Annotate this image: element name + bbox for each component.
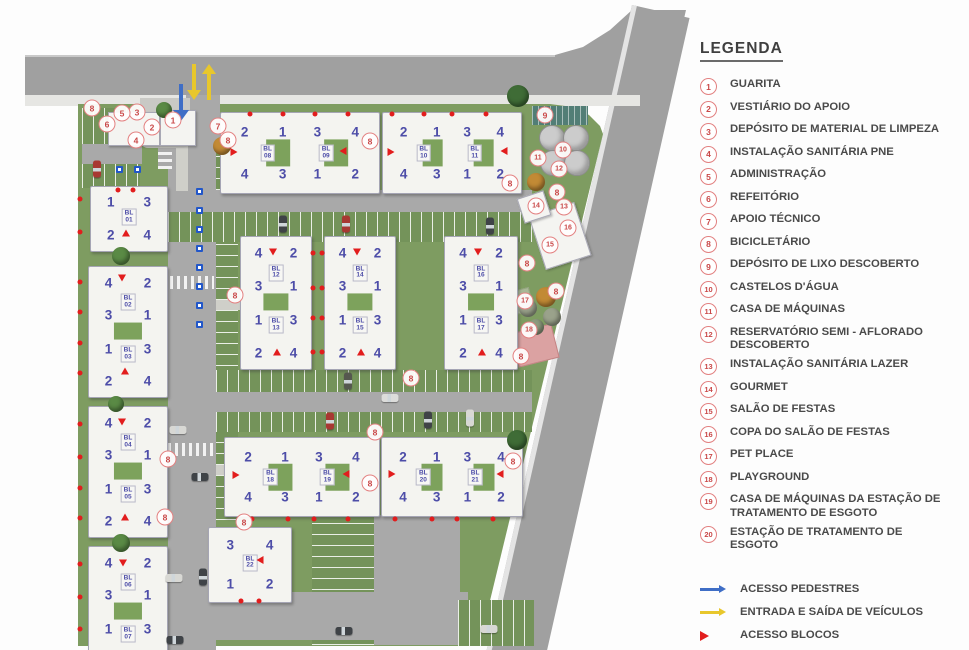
block-access-triangle-icon: [233, 471, 240, 479]
building-cluster-06-07: 42311324BL06BL07: [88, 546, 168, 650]
courtyard: [114, 322, 142, 339]
legend-ref-marker-8: 8: [519, 255, 536, 272]
building-unit-number: 1: [281, 449, 289, 464]
building-unit-number: 1: [105, 481, 113, 496]
bl-label-line: 03: [124, 354, 133, 361]
accessible-parking-icon: [196, 245, 203, 252]
private-area-dot-icon: [131, 188, 136, 193]
legend-item: 19CASA DE MÁQUINAS DA ESTAÇÃO DE TRATAME…: [700, 493, 962, 520]
crosswalk-mid: [170, 276, 214, 289]
legend-item-number: 3: [700, 123, 717, 140]
block-access-triangle-icon: [343, 470, 350, 478]
building-unit-number: 4: [144, 374, 152, 389]
bl-label-line: 07: [124, 634, 133, 641]
legend-ref-marker-3: 3: [129, 104, 146, 121]
legend-item-label: GUARITA: [730, 78, 781, 92]
building-unit-number: 1: [144, 448, 152, 463]
building-unit-number: 3: [459, 278, 467, 293]
building-unit-number: 4: [105, 415, 113, 430]
building-cluster-08-09: 21344312BL08BL09: [220, 112, 380, 194]
building-unit-number: 1: [464, 490, 472, 505]
parked-car: [336, 627, 353, 635]
site-plan-page: 21344312BL08BL0921344312BL10BL1121344312…: [0, 0, 969, 650]
building-unit-number: 1: [227, 576, 235, 591]
legend-ref-marker-2: 2: [144, 119, 161, 136]
legend-item-label: PLAYGROUND: [730, 471, 809, 485]
building-unit-number: 4: [105, 275, 113, 290]
building-unit-number: 4: [105, 555, 113, 570]
legend-ref-marker-6: 6: [99, 116, 116, 133]
legend-item-label: PET PLACE: [730, 448, 793, 462]
legend-item-label: ADMINISTRAÇÃO: [730, 168, 826, 182]
building-unit-number: 1: [459, 313, 467, 328]
legend-ref-marker-15: 15: [542, 237, 559, 254]
bl-label-line: 13: [272, 325, 281, 332]
legend-item-number: 19: [700, 493, 717, 510]
legend-item-number: 7: [700, 213, 717, 230]
accessible-parking-icon: [196, 207, 203, 214]
block-access-triangle-icon: [121, 368, 129, 375]
building-unit-number: 2: [241, 125, 249, 140]
legend-ref-marker-8: 8: [362, 475, 379, 492]
building-unit-number: 2: [255, 346, 263, 361]
bl-label: BL19: [320, 469, 335, 486]
legend-item-number: 14: [700, 381, 717, 398]
bl-label-line: 02: [124, 302, 133, 309]
building-unit-number: 2: [497, 490, 505, 505]
bl-label-line: 14: [356, 273, 365, 280]
building-unit-number: 2: [144, 415, 152, 430]
bl-label-line: 04: [124, 442, 133, 449]
legend-ref-marker-17: 17: [517, 293, 534, 310]
vehicle-access-arrow-icon: [700, 611, 728, 614]
private-area-dot-icon: [311, 350, 316, 355]
legend-ref-marker-8: 8: [367, 424, 384, 441]
building-unit-number: 3: [374, 313, 382, 328]
legend-item-label: DEPÓSITO DE LIXO DESCOBERTO: [730, 258, 919, 272]
private-area-dot-icon: [346, 517, 351, 522]
private-area-dot-icon: [390, 112, 395, 117]
building-unit-number: 1: [433, 125, 441, 140]
private-area-dot-icon: [393, 517, 398, 522]
building-unit-number: 1: [463, 166, 471, 181]
bl-label-line: 22: [246, 563, 255, 570]
legend-item: 11CASA DE MÁQUINAS: [700, 303, 962, 320]
block-access-triangle-icon: [700, 631, 728, 641]
courtyard: [114, 462, 142, 479]
legend-symbol-label: ENTRADA E SAÍDA DE VEÍCULOS: [740, 606, 923, 620]
bl-label-line: 11: [470, 153, 479, 160]
legend-ref-marker-11: 11: [530, 150, 547, 167]
legend-ref-marker-8: 8: [362, 133, 379, 150]
private-area-dot-icon: [455, 517, 460, 522]
legend-item-label: CASA DE MÁQUINAS DA ESTAÇÃO DE TRATAMENT…: [730, 493, 942, 520]
building-unit-number: 2: [105, 514, 113, 529]
block-access-triangle-icon: [257, 556, 264, 564]
arrowhead: [719, 608, 726, 616]
building-unit-number: 3: [463, 125, 471, 140]
tree-icon: [507, 85, 529, 107]
legend-ref-marker-5: 5: [114, 105, 131, 122]
private-area-dot-icon: [78, 562, 83, 567]
parked-car: [166, 574, 183, 582]
private-area-dot-icon: [311, 316, 316, 321]
legend-item-number: 2: [700, 101, 717, 118]
block-access-triangle-icon: [353, 249, 361, 256]
building-unit-number: 2: [144, 275, 152, 290]
private-area-dot-icon: [78, 627, 83, 632]
building-unit-number: 3: [314, 125, 322, 140]
private-area-dot-icon: [312, 517, 317, 522]
building-unit-number: 1: [105, 341, 113, 356]
legend-item: 3DEPÓSITO DE MATERIAL DE LIMPEZA: [700, 123, 962, 140]
building-cluster-01: 1324BL01: [90, 186, 168, 252]
parked-car: [424, 412, 432, 429]
building-unit-number: 2: [144, 555, 152, 570]
tree-icon: [112, 247, 130, 265]
private-area-dot-icon: [78, 455, 83, 460]
legend-item: 8BICICLETÁRIO: [700, 236, 962, 253]
legend-item-label: GOURMET: [730, 381, 788, 395]
building-unit-number: 3: [144, 341, 152, 356]
building-unit-number: 4: [339, 245, 347, 260]
legend-item-label: DEPÓSITO DE MATERIAL DE LIMPEZA: [730, 123, 939, 137]
legend-ref-marker-8: 8: [548, 283, 565, 300]
building-unit-number: 1: [495, 278, 503, 293]
legend-title: LEGENDA: [700, 40, 783, 62]
vehicle-exit-arrow-icon: [207, 74, 211, 100]
legend-ref-marker-8: 8: [403, 370, 420, 387]
building-unit-number: 1: [255, 313, 263, 328]
courtyard: [263, 293, 288, 310]
private-area-dot-icon: [78, 230, 83, 235]
building-unit-number: 3: [144, 481, 152, 496]
private-area-dot-icon: [320, 316, 325, 321]
legend-item-number: 12: [700, 326, 717, 343]
parked-car: [279, 216, 287, 233]
legend-item-number: 6: [700, 191, 717, 208]
parking-row-northwest-lower: [82, 164, 140, 188]
parked-car: [486, 218, 494, 235]
building-unit-number: 3: [315, 449, 323, 464]
legend-item-number: 17: [700, 448, 717, 465]
parked-car: [93, 161, 101, 178]
legend-item: 16COPA DO SALÃO DE FESTAS: [700, 426, 962, 443]
legend-symbol-label: ACESSO PEDESTRES: [740, 583, 859, 597]
building-unit-number: 1: [144, 588, 152, 603]
building-unit-number: 4: [399, 490, 407, 505]
accessible-parking-icon: [196, 188, 203, 195]
bl-label-line: 01: [125, 217, 134, 224]
arrowhead: [719, 585, 726, 593]
legend-item-number: 9: [700, 258, 717, 275]
legend-item-label: BICICLETÁRIO: [730, 236, 810, 250]
parked-car: [199, 569, 207, 586]
legend-item-label: INSTALAÇÃO SANITÁRIA LAZER: [730, 358, 908, 372]
block-access-triangle-icon: [119, 560, 127, 567]
building-unit-number: 1: [314, 166, 322, 181]
private-area-dot-icon: [78, 197, 83, 202]
legend-item-label: INSTALAÇÃO SANITÁRIA PNE: [730, 146, 894, 160]
legend-item-number: 4: [700, 146, 717, 163]
private-area-dot-icon: [78, 516, 83, 521]
bl-label-line: 08: [263, 153, 272, 160]
bl-label: BL21: [468, 469, 483, 486]
private-area-dot-icon: [422, 112, 427, 117]
building-unit-number: 1: [105, 621, 113, 636]
vehicle-entry-arrow-icon: [192, 64, 196, 90]
legend-item: 14GOURMET: [700, 381, 962, 398]
private-area-dot-icon: [346, 112, 351, 117]
legend-symbols: ACESSO PEDESTRESENTRADA E SAÍDA DE VEÍCU…: [700, 583, 962, 650]
private-area-dot-icon: [320, 286, 325, 291]
pedestrian-access-arrow-icon: [700, 588, 720, 591]
legend-ref-marker-16: 16: [560, 220, 577, 237]
legend-item: 2VESTIÁRIO DO APOIO: [700, 101, 962, 118]
building-unit-number: 3: [433, 166, 441, 181]
legend-ref-marker-1: 1: [165, 112, 182, 129]
bl-label: BL22: [243, 554, 258, 571]
parked-car: [481, 625, 498, 633]
private-area-dot-icon: [116, 188, 121, 193]
private-area-dot-icon: [248, 112, 253, 117]
bl-label-line: 19: [323, 477, 332, 484]
legend-item-label: SALÃO DE FESTAS: [730, 403, 835, 417]
internal-lane-central: [168, 392, 532, 412]
building-cluster-22: 3412BL22: [208, 527, 292, 603]
building-unit-number: 3: [279, 166, 287, 181]
building-unit-number: 4: [143, 228, 151, 243]
building-cluster-02-03: 42311324BL02BL03: [88, 266, 168, 398]
private-area-dot-icon: [78, 280, 83, 285]
legend-item-label: APOIO TÉCNICO: [730, 213, 820, 227]
block-access-triangle-icon: [497, 470, 504, 478]
block-access-triangle-icon: [474, 249, 482, 256]
private-area-dot-icon: [430, 517, 435, 522]
vehicle-access-arrow-icon: [700, 611, 720, 614]
building-unit-number: 4: [290, 346, 298, 361]
bl-label: BL07: [121, 626, 136, 643]
legend-ref-marker-4: 4: [128, 132, 145, 149]
accessible-parking-icon: [196, 264, 203, 271]
legend-symbol-item: ENTRADA E SAÍDA DE VEÍCULOS: [700, 606, 962, 620]
parking-row-southeast: [458, 600, 534, 646]
building-unit-number: 2: [352, 166, 360, 181]
legend-ref-marker-8: 8: [84, 100, 101, 117]
building-unit-number: 2: [495, 245, 503, 260]
bl-label: BL06: [121, 574, 136, 591]
accessible-parking-icon: [196, 321, 203, 328]
private-area-dot-icon: [320, 350, 325, 355]
legend-ref-marker-9: 9: [537, 107, 554, 124]
tree-icon: [543, 308, 561, 326]
accessible-parking-icon: [196, 226, 203, 233]
private-area-dot-icon: [491, 517, 496, 522]
building-unit-number: 1: [107, 194, 115, 209]
block-access-triangle-icon: [389, 470, 396, 478]
tree-icon: [112, 534, 130, 552]
private-area-dot-icon: [78, 486, 83, 491]
legend-item-label: CASA DE MÁQUINAS: [730, 303, 845, 317]
bl-label: BL12: [269, 264, 284, 281]
legend-item: 17PET PLACE: [700, 448, 962, 465]
block-access-triangle-icon: [700, 631, 709, 641]
legend-item-number: 10: [700, 281, 717, 298]
building-unit-number: 4: [497, 125, 505, 140]
vehicle-exit-arrowhead-icon: [202, 64, 216, 74]
legend-item: 15SALÃO DE FESTAS: [700, 403, 962, 420]
legend-item: 4INSTALAÇÃO SANITÁRIA PNE: [700, 146, 962, 163]
private-area-dot-icon: [286, 517, 291, 522]
legend-item: 20ESTAÇÃO DE TRATAMENTO DE ESGOTO: [700, 526, 962, 553]
bl-label: BL04: [121, 434, 136, 451]
private-area-dot-icon: [78, 341, 83, 346]
accessible-parking-icon: [134, 166, 141, 173]
private-area-dot-icon: [239, 599, 244, 604]
building-unit-number: 3: [339, 278, 347, 293]
parked-car: [192, 473, 209, 481]
legend-ref-marker-8: 8: [157, 509, 174, 526]
legend-ref-marker-8: 8: [505, 453, 522, 470]
building-unit-number: 3: [144, 621, 152, 636]
block-access-triangle-icon: [118, 419, 126, 426]
legend-ref-marker-8: 8: [513, 348, 530, 365]
building-unit-number: 3: [290, 313, 298, 328]
legend-item-number: 15: [700, 403, 717, 420]
legend-item-label: COPA DO SALÃO DE FESTAS: [730, 426, 890, 440]
legend-ref-marker-14: 14: [528, 198, 545, 215]
legend-item-number: 16: [700, 426, 717, 443]
block-access-triangle-icon: [478, 349, 486, 356]
legend-ref-marker-10: 10: [555, 142, 572, 159]
parking-row-central-upper: [216, 370, 532, 392]
legend-ref-marker-13: 13: [556, 199, 573, 216]
site-plan-map: 21344312BL08BL0921344312BL10BL1121344312…: [0, 0, 700, 650]
legend-item: 1GUARITA: [700, 78, 962, 95]
accessible-parking-icon: [196, 283, 203, 290]
building-unit-number: 1: [339, 313, 347, 328]
parked-car: [342, 216, 350, 233]
bl-label: BL01: [122, 209, 137, 226]
legend-symbol-item: ACESSO PEDESTRES: [700, 583, 962, 597]
block-access-triangle-icon: [121, 514, 129, 521]
building-unit-number: 1: [433, 449, 441, 464]
legend-item-label: VESTIÁRIO DO APOIO: [730, 101, 850, 115]
bl-label-line: 05: [124, 494, 133, 501]
building-unit-number: 2: [290, 245, 298, 260]
building-unit-number: 4: [144, 514, 152, 529]
legend-item-number: 1: [700, 78, 717, 95]
block-access-triangle-icon: [118, 275, 126, 282]
bl-label-line: 16: [477, 273, 486, 280]
legend-item-number: 20: [700, 526, 717, 543]
main-road-top: [25, 55, 640, 99]
legend-item-label: RESERVATÓRIO SEMI - AFLORADO DESCOBERTO: [730, 326, 942, 353]
private-area-dot-icon: [78, 422, 83, 427]
building-unit-number: 1: [144, 308, 152, 323]
block-access-triangle-icon: [273, 349, 281, 356]
building-unit-number: 4: [244, 490, 252, 505]
legend-item: 5ADMINISTRAÇÃO: [700, 168, 962, 185]
building-unit-number: 2: [266, 576, 274, 591]
legend-item-number: 18: [700, 471, 717, 488]
bl-label-line: 21: [471, 477, 480, 484]
building-unit-number: 2: [107, 228, 115, 243]
private-area-dot-icon: [484, 112, 489, 117]
private-area-dot-icon: [450, 112, 455, 117]
vehicle-entry-arrowhead-icon: [187, 90, 201, 100]
building-unit-number: 4: [352, 125, 360, 140]
building-unit-number: 3: [105, 448, 113, 463]
bl-label: BL18: [263, 469, 278, 486]
block-access-triangle-icon: [501, 147, 508, 155]
building-unit-number: 4: [352, 449, 360, 464]
private-area-dot-icon: [78, 595, 83, 600]
accessible-parking-icon: [196, 302, 203, 309]
legend-ref-marker-18: 18: [521, 322, 538, 339]
legend-panel: LEGENDA 1GUARITA2VESTIÁRIO DO APOIO3DEPÓ…: [700, 40, 962, 650]
legend-item-label: CASTELOS D'ÁGUA: [730, 281, 839, 295]
block-access-triangle-icon: [122, 230, 130, 237]
tree-icon: [507, 430, 527, 450]
building-unit-number: 3: [143, 194, 151, 209]
building-unit-number: 1: [374, 278, 382, 293]
bl-label: BL02: [121, 294, 136, 311]
bl-label-line: 15: [356, 325, 365, 332]
legend-ref-marker-8: 8: [220, 132, 237, 149]
pedestrian-access-arrow-icon: [700, 588, 728, 591]
bl-label: BL03: [121, 346, 136, 363]
tree-icon: [108, 396, 124, 412]
building-unit-number: 2: [352, 490, 360, 505]
private-area-dot-icon: [78, 310, 83, 315]
building-unit-number: 1: [290, 278, 298, 293]
building-unit-number: 3: [227, 538, 235, 553]
block-access-triangle-icon: [357, 349, 365, 356]
building-unit-number: 3: [255, 278, 263, 293]
bl-label-line: 20: [419, 477, 428, 484]
bl-label-line: 09: [322, 153, 331, 160]
parked-car: [382, 394, 399, 402]
building-unit-number: 2: [105, 374, 113, 389]
private-area-dot-icon: [78, 371, 83, 376]
legend-item: 18PLAYGROUND: [700, 471, 962, 488]
building-unit-number: 2: [399, 449, 407, 464]
building-unit-number: 3: [105, 308, 113, 323]
building-unit-number: 2: [459, 346, 467, 361]
parked-car: [326, 413, 334, 430]
bl-label: BL20: [416, 469, 431, 486]
private-area-dot-icon: [313, 112, 318, 117]
bl-label: BL08: [260, 145, 275, 162]
legend-ref-marker-8: 8: [502, 175, 519, 192]
legend-item: 9DEPÓSITO DE LIXO DESCOBERTO: [700, 258, 962, 275]
legend-ref-marker-8: 8: [227, 287, 244, 304]
building-unit-number: 4: [495, 346, 503, 361]
building-unit-number: 4: [459, 245, 467, 260]
building-unit-number: 3: [464, 449, 472, 464]
bl-label: BL13: [269, 317, 284, 334]
building-unit-number: 3: [105, 588, 113, 603]
pedestrian-access-arrow-icon: [179, 84, 183, 110]
building-unit-number: 3: [495, 313, 503, 328]
building-unit-number: 3: [281, 490, 289, 505]
parked-car: [170, 426, 187, 434]
building-unit-number: 4: [255, 245, 263, 260]
block-access-triangle-icon: [231, 148, 238, 156]
legend-ref-marker-8: 8: [160, 451, 177, 468]
bl-label: BL09: [319, 145, 334, 162]
